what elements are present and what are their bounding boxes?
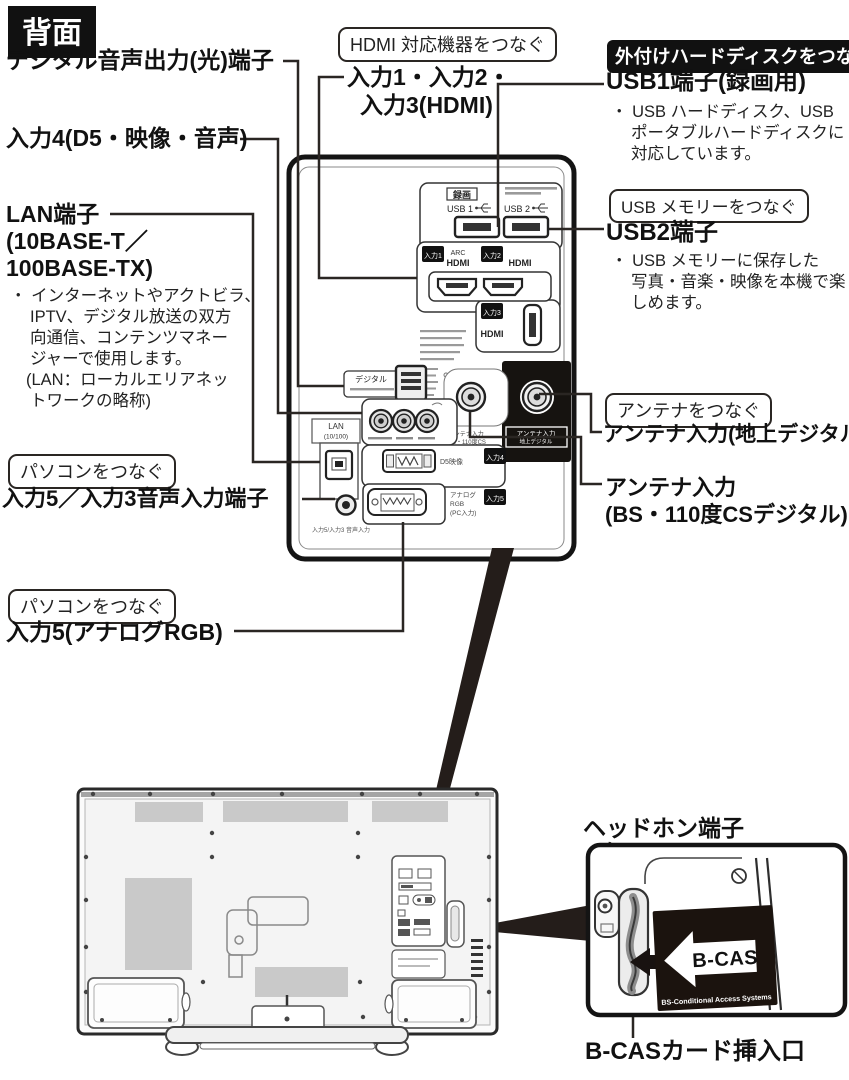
usb2-port-label: USB 2 — [504, 204, 530, 214]
side-panel-zoom: B-CAS BS-Conditional Access Systems — [588, 845, 845, 1015]
rca-jack — [370, 410, 392, 432]
hdmi-connect-callout: HDMI 対応機器をつなぐ — [338, 27, 557, 62]
svg-text:入力1: 入力1 — [424, 251, 442, 260]
rgb-label-line3: (PC入力) — [450, 508, 476, 517]
panel-usb-section: 録画 USB 1 USB 2 — [420, 183, 562, 250]
antenna-terrestrial-label: アンテナ入力(地上デジタル) — [603, 422, 849, 448]
tv-port-cluster — [392, 856, 445, 978]
input1-badge: 入力1 — [422, 246, 444, 262]
hdmi-inputs-label: 入力1・入力2・ 入力3(HDMI) — [347, 63, 511, 119]
rgb-label-line2: RGB — [450, 501, 464, 508]
d5-port-label: D5映像 — [440, 457, 463, 466]
bcas-slot-label: B-CASカード挿入口 — [585, 1039, 805, 1065]
digital-audio-label: デジタル音声出力(光)端子 — [6, 47, 274, 73]
arc-label: ARC — [451, 250, 466, 257]
input3-badge: 入力3 — [481, 303, 503, 319]
rca-jack — [416, 410, 438, 432]
input5-audio-label: 入力5／入力3音声入力端子 — [2, 486, 268, 512]
panel-d-terminal-section: D5映像 入力4 — [362, 445, 506, 487]
antenna-terr-badge-line2: 地上デジタル — [520, 438, 553, 446]
panel-optical-section: デジタル — [344, 366, 426, 400]
usb1-note: ・ USB ハードディスク、USB ポータブルハードディスクに 対応しています。 — [611, 102, 844, 165]
svg-text:入力3: 入力3 — [483, 308, 501, 317]
pc-connect-callout-1: パソコンをつなぐ — [8, 454, 176, 489]
lan-port-label-line1: LAN — [328, 422, 344, 431]
svg-text:入力2: 入力2 — [483, 251, 501, 260]
hdmi-logo-2: HDMI — [509, 258, 532, 268]
rca-jack — [393, 410, 415, 432]
antenna-terrestrial-connector — [520, 380, 554, 414]
input4-label: 入力4(D5・映像・音声) — [6, 125, 248, 151]
usb1-label: USB1端子(録画用) — [606, 69, 806, 95]
hdmi-logo-3: HDMI — [481, 329, 504, 339]
headphone-jack — [595, 891, 619, 937]
bcas-card: B-CAS BS-Conditional Access Systems — [653, 905, 778, 1011]
usb-memory-callout: USB メモリーをつなぐ — [609, 189, 809, 223]
rec-badge-label: 録画 — [453, 189, 471, 200]
bcas-card-slot — [619, 889, 648, 995]
input5-rgb-label: 入力5(アナログRGB) — [6, 619, 223, 645]
usb2-label: USB2端子 — [606, 220, 718, 246]
antenna-bs-connector — [457, 383, 485, 411]
input4-badge: 入力4 — [484, 448, 506, 464]
screw-icon — [732, 869, 746, 883]
audio-in-small-label: 入力5/入力3 音声入力 — [312, 526, 370, 534]
input2-badge: 入力2 — [481, 246, 503, 262]
manual-page: 録画 USB 1 USB 2 — [0, 0, 849, 1080]
usb2-note: ・ USB メモリーに保存した 写真・音楽・映像を本機で楽 しめます。 — [611, 251, 846, 314]
lan-port-label-line2: (10/100) — [324, 434, 348, 441]
hdmi-logo-1: HDMI — [447, 258, 470, 268]
optical-label: デジタル — [355, 374, 387, 384]
tv-back-view — [78, 789, 497, 1055]
lan-label: LAN端子 (10BASE-T／ 100BASE-TX) — [6, 201, 153, 282]
usb1-port-label: USB 1 — [447, 204, 473, 214]
input5-badge: 入力5 — [484, 489, 506, 505]
svg-text:入力5: 入力5 — [486, 494, 504, 503]
panel-rca-section — [362, 399, 457, 445]
lan-note: ・ インターネットやアクトビラ、 IPTV、デジタル放送の双方 向通信、コンテン… — [10, 286, 261, 412]
antenna-bs-label: アンテナ入力 (BS・110度CSデジタル) — [605, 474, 848, 528]
bcas-card-text: B-CAS — [692, 947, 759, 972]
headphone-label: ヘッドホン端子 — [583, 815, 744, 841]
svg-text:入力4: 入力4 — [486, 453, 504, 462]
rgb-label-line1: アナログ — [450, 490, 476, 499]
